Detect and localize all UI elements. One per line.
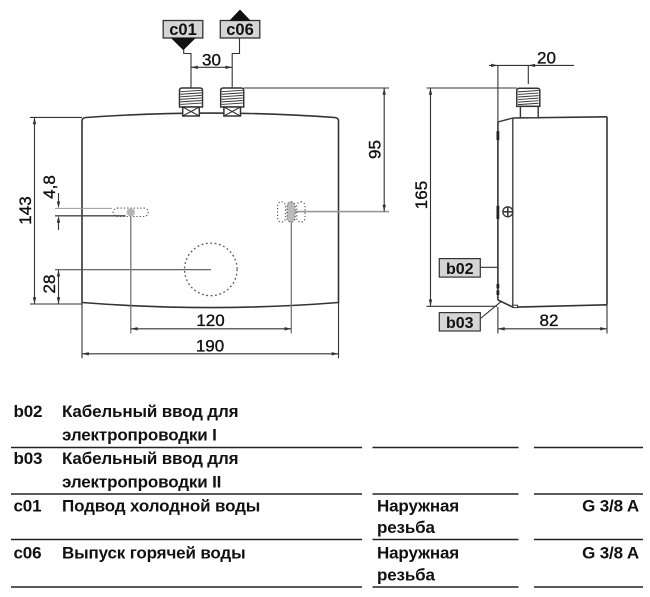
svg-text:электропроводки II: электропроводки II <box>62 473 221 492</box>
svg-text:Наружная: Наружная <box>377 497 459 516</box>
svg-text:143: 143 <box>16 196 35 224</box>
svg-text:165: 165 <box>412 181 431 209</box>
svg-text:120: 120 <box>196 311 224 330</box>
svg-text:28: 28 <box>40 275 59 294</box>
svg-text:Кабельный ввод для: Кабельный ввод для <box>62 449 238 468</box>
svg-text:Выпуск горячей воды: Выпуск горячей воды <box>62 544 245 563</box>
svg-text:4,8: 4,8 <box>40 175 59 199</box>
svg-text:резьба: резьба <box>377 566 435 585</box>
svg-text:82: 82 <box>540 311 559 330</box>
svg-text:190: 190 <box>196 336 224 355</box>
svg-text:b03: b03 <box>14 449 43 468</box>
svg-text:c01: c01 <box>169 21 197 39</box>
svg-text:b02: b02 <box>14 402 43 421</box>
svg-text:G 3/8 A: G 3/8 A <box>582 544 639 563</box>
svg-text:b03: b03 <box>446 315 474 332</box>
svg-text:резьба: резьба <box>377 518 435 537</box>
svg-text:электропроводки I: электропроводки I <box>62 426 217 445</box>
svg-text:Наружная: Наружная <box>377 544 459 563</box>
svg-text:30: 30 <box>202 50 221 69</box>
svg-text:c06: c06 <box>226 21 254 39</box>
svg-text:Кабельный ввод для: Кабельный ввод для <box>62 402 238 421</box>
svg-text:G 3/8 A: G 3/8 A <box>582 497 639 516</box>
svg-text:Подвод холодной воды: Подвод холодной воды <box>62 497 260 516</box>
svg-text:b02: b02 <box>446 261 474 278</box>
svg-text:c01: c01 <box>14 497 42 516</box>
svg-text:20: 20 <box>537 48 556 67</box>
svg-text:95: 95 <box>366 140 385 159</box>
svg-text:c06: c06 <box>14 544 42 563</box>
